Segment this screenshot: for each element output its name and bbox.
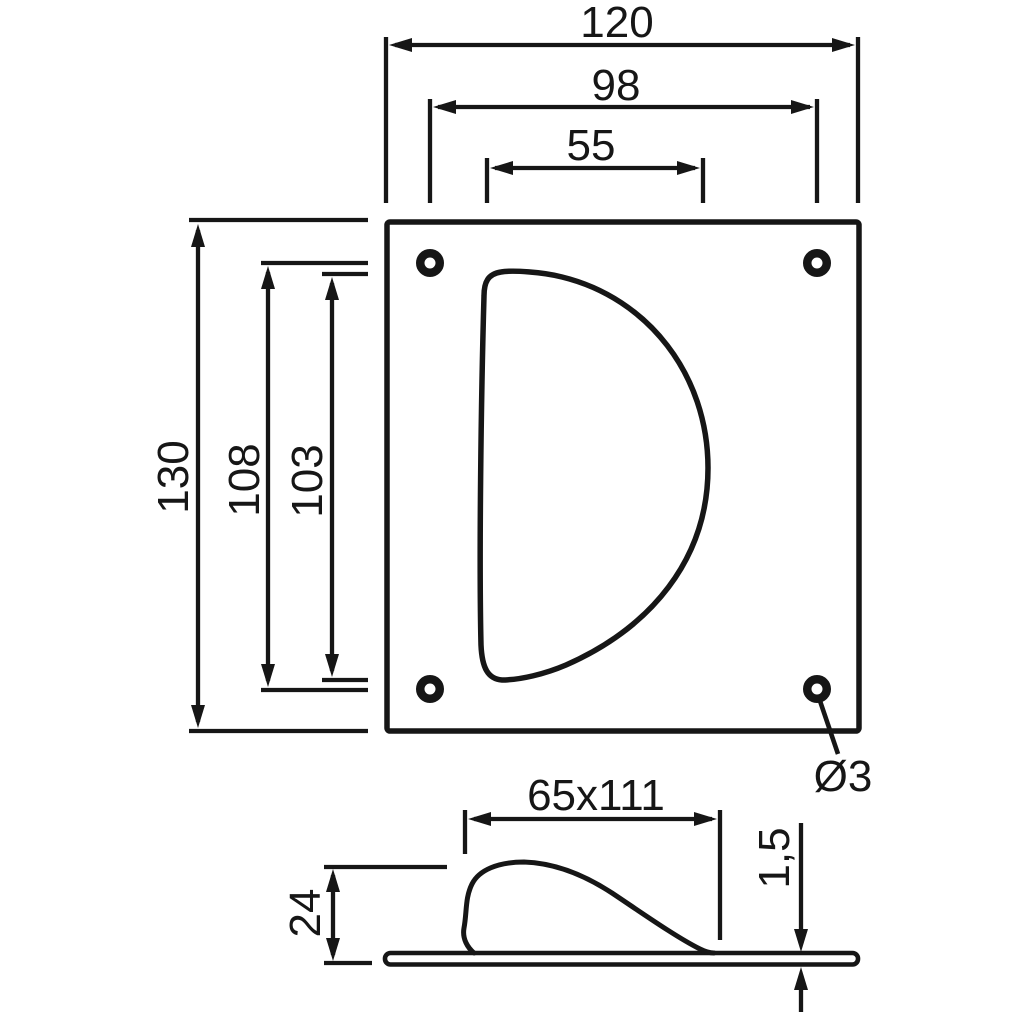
mounting-hole-top-right	[807, 253, 827, 273]
arrow-1-5-up	[794, 967, 808, 990]
arrow-55-left	[490, 161, 513, 175]
dim-label-plate-thickness: 1,5	[750, 827, 799, 888]
dim-label-cutout-height: 103	[283, 444, 332, 517]
arrow-55-right	[677, 161, 700, 175]
dim-label-recess-depth: 24	[281, 889, 330, 938]
recess-cutout-outline	[480, 271, 708, 680]
arrow-24-bottom	[326, 938, 340, 961]
dim-label-plate-width: 120	[580, 0, 653, 47]
drawing-sheet: 120 98 55 130 108 103 Ø3 65x111 24 1,5	[0, 0, 1024, 1024]
dimension-labels: 120 98 55 130 108 103 Ø3 65x111 24 1,5	[149, 0, 872, 937]
arrow-108-top	[261, 266, 275, 289]
dim-label-cutout-top-width: 55	[567, 121, 616, 170]
arrow-130-bottom	[191, 705, 205, 728]
arrow-65x111-left	[468, 812, 491, 826]
arrow-103-bottom	[325, 654, 339, 677]
mounting-hole-bottom-left	[420, 679, 440, 699]
arrow-98-right	[791, 100, 814, 114]
arrow-120-right	[832, 38, 855, 52]
mounting-hole-bottom-right	[807, 679, 827, 699]
technical-drawing-canvas: 120 98 55 130 108 103 Ø3 65x111 24 1,5	[0, 0, 1024, 1024]
dim-label-plate-height: 130	[149, 440, 198, 513]
side-plate-bar	[385, 953, 858, 965]
arrow-103-top	[325, 277, 339, 300]
hole-diameter-leader-line	[819, 698, 838, 754]
dim-label-recess-size: 65x111	[527, 771, 665, 820]
arrow-108-bottom	[261, 664, 275, 687]
arrow-65x111-right	[694, 812, 717, 826]
dim-label-hole-spacing-width: 98	[592, 61, 641, 110]
dim-label-hole-diameter: Ø3	[814, 752, 873, 801]
arrow-98-left	[433, 100, 456, 114]
side-recess-profile	[464, 862, 714, 953]
arrow-120-left	[389, 38, 412, 52]
mounting-hole-top-left	[420, 253, 440, 273]
arrow-130-top	[191, 224, 205, 247]
dim-label-hole-spacing-height: 108	[220, 443, 269, 516]
front-plate-outline	[387, 222, 859, 731]
arrow-1-5-down	[794, 929, 808, 952]
